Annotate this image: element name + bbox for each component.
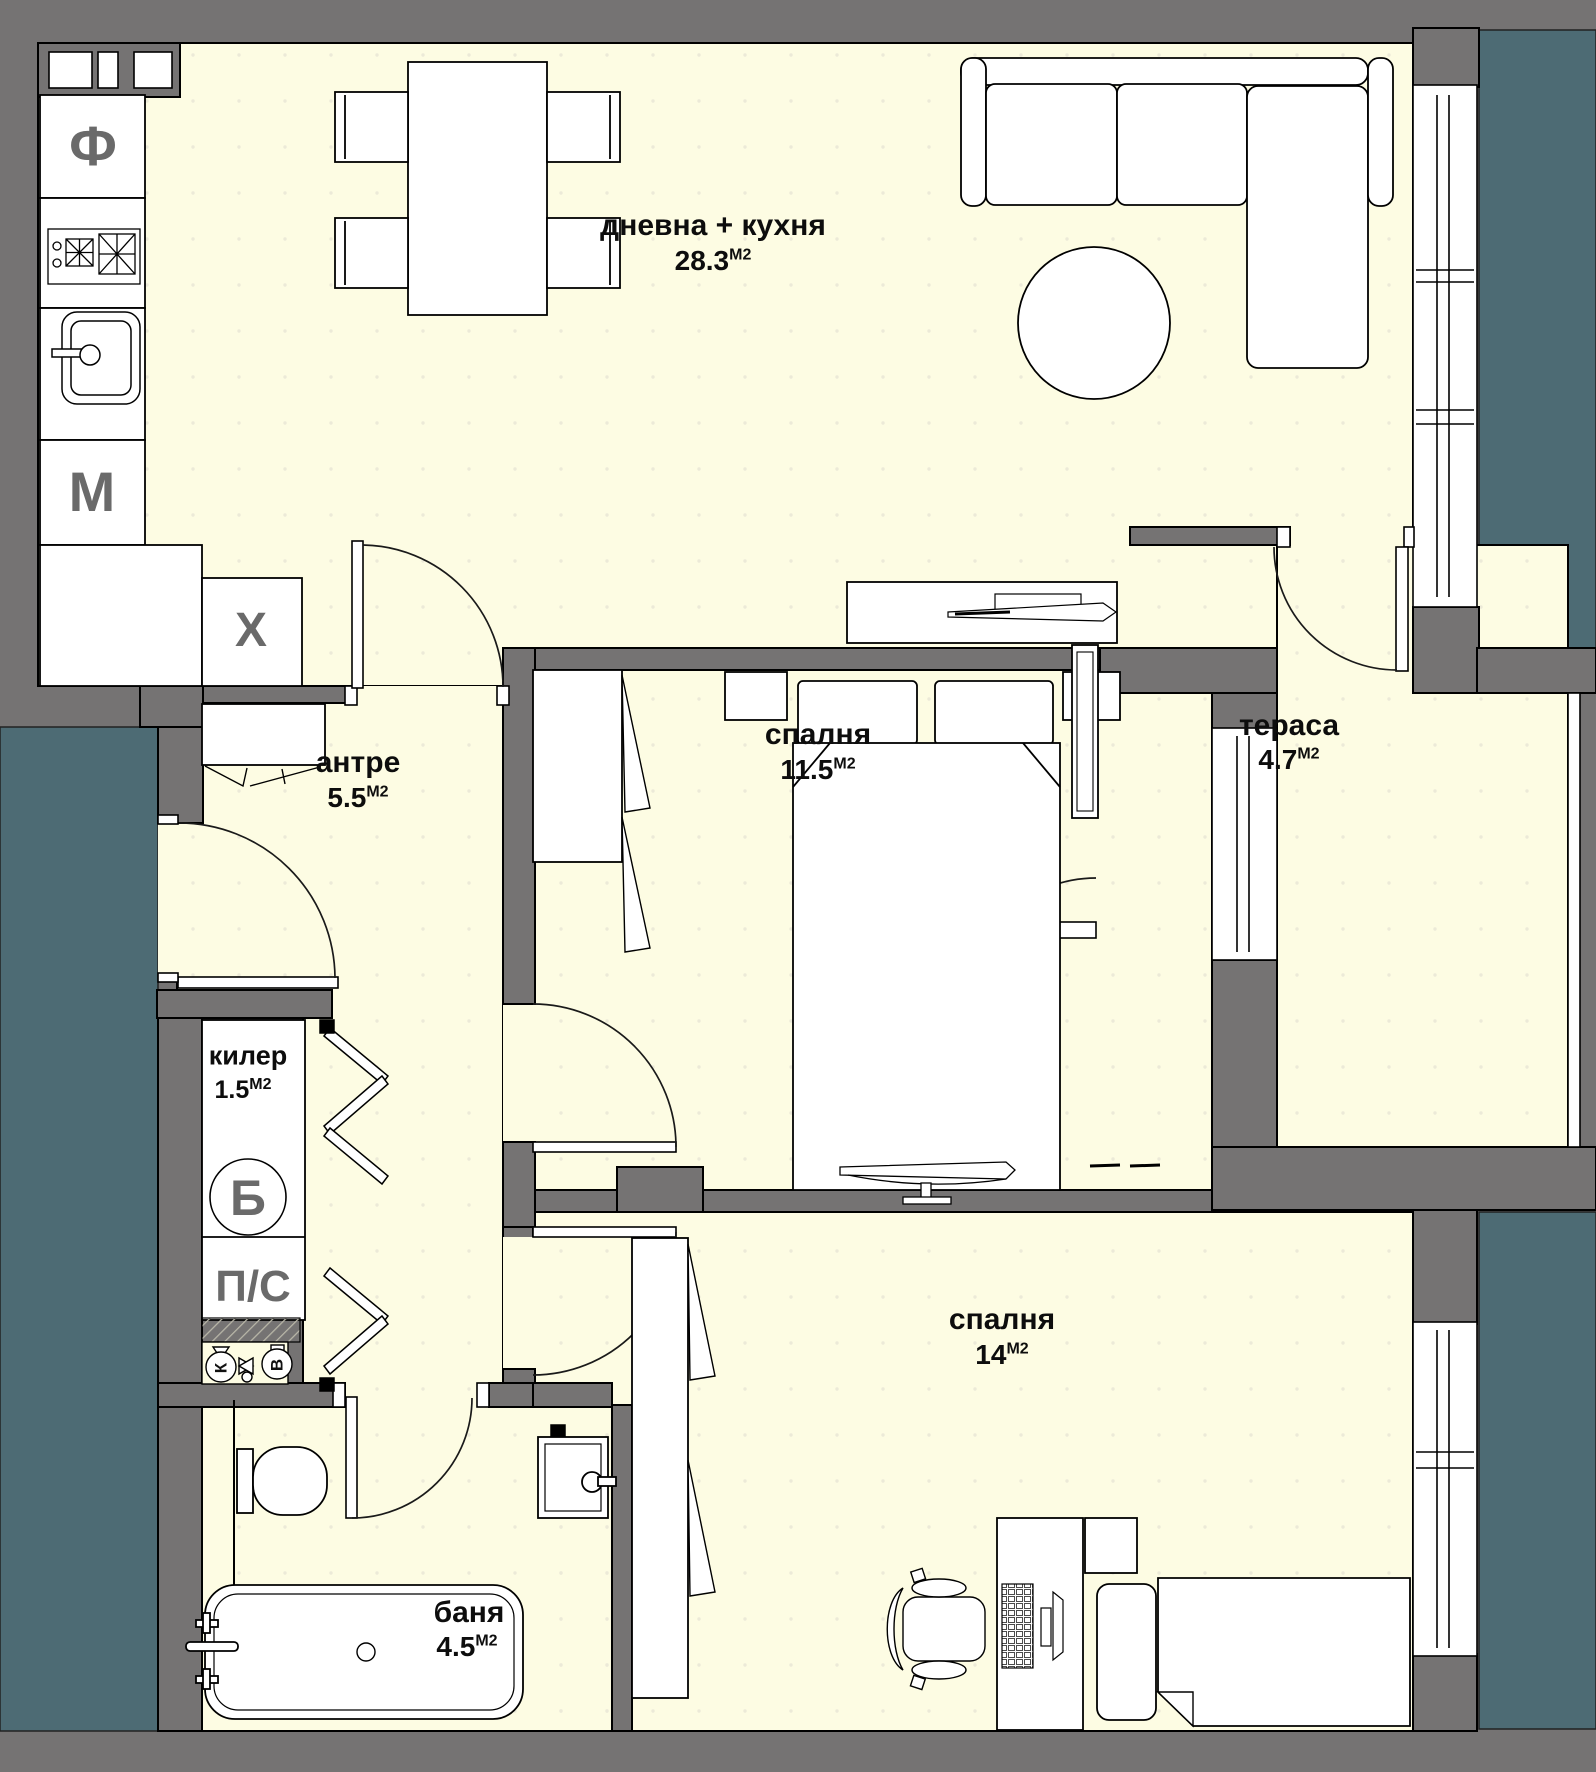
- bath-door-jamb-left: [333, 1383, 345, 1407]
- tv-cabinet: [847, 582, 1117, 643]
- label-terrace-name: тераса: [1239, 711, 1339, 741]
- keyboard: [1002, 1584, 1033, 1668]
- bath-door-pivot: [551, 1425, 565, 1438]
- living-door-jamb-right: [497, 686, 509, 705]
- coffee-table: [1018, 247, 1170, 399]
- label-closet-area: 1.5М2: [215, 1077, 272, 1103]
- label-meter-cold: К: [213, 1363, 230, 1373]
- wall-terrace-top: [1477, 648, 1596, 693]
- living-room-window: [1413, 85, 1477, 607]
- wall-bedroom1-bedroom2-chunk: [617, 1167, 703, 1212]
- bed2-pillow: [1097, 1584, 1156, 1720]
- bedroom1-door-leaf: [533, 1142, 676, 1152]
- hallway-threshold: [178, 977, 338, 988]
- wall-living-bedroom1: [503, 648, 1130, 670]
- wall-terrace-bottom: [1212, 1147, 1596, 1210]
- label-dishwasher: Х: [235, 607, 267, 655]
- sofa-cushion-2: [1117, 84, 1247, 205]
- label-meter-hot: В: [269, 1359, 286, 1371]
- label-hallway-name: антре: [316, 748, 401, 778]
- dining-table: [408, 62, 547, 315]
- wall-closet-top: [157, 990, 332, 1018]
- monitor-stand: [1041, 1608, 1051, 1646]
- label-bedroom2-area: 14М2: [975, 1341, 1028, 1369]
- wall-bathroom-top-nook: [533, 1383, 612, 1407]
- label-closet-name: килер: [209, 1043, 287, 1070]
- sofa-cushion-1: [986, 84, 1117, 205]
- bathroom-sink: [538, 1437, 616, 1518]
- bedroom2-window: [1413, 1322, 1477, 1656]
- chair-seat: [903, 1597, 985, 1661]
- bath-spout: [186, 1642, 238, 1651]
- kitchen-window-pane-2: [98, 52, 118, 88]
- bedroom2-nightstand: [1085, 1518, 1137, 1573]
- floor-plan-drawing: [0, 0, 1596, 1772]
- outside-left: [0, 727, 158, 1731]
- kitchen-sink-icon: [52, 312, 140, 404]
- entrance-jamb-top: [158, 815, 178, 824]
- meter-niche-hatch: [202, 1318, 300, 1342]
- living-hall-door-leaf: [352, 541, 363, 688]
- label-boiler: Б: [230, 1173, 266, 1223]
- sofa-back: [961, 58, 1368, 85]
- bathroom-door-leaf: [346, 1397, 357, 1518]
- wall-bedroom1-terrace-lower: [1212, 960, 1277, 1147]
- terrace-railing: [1568, 693, 1580, 1147]
- bedroom2-door-leaf: [533, 1227, 676, 1237]
- label-living-kitchen-area: 28.3М2: [675, 247, 752, 275]
- stove-icon: [48, 229, 140, 284]
- label-bathroom-name: баня: [434, 1598, 505, 1628]
- label-dryer: П/С: [215, 1265, 291, 1309]
- kitchen-corner-counter: [40, 545, 202, 686]
- entrance-jamb-bottom: [158, 973, 178, 982]
- wall-bathroom-top-right: [489, 1383, 533, 1407]
- living-door-jamb-left: [345, 686, 357, 705]
- terrace-door-leaf: [1396, 547, 1408, 671]
- label-bedroom2-name: спалня: [949, 1305, 1055, 1335]
- single-bed: [1097, 1578, 1410, 1726]
- wall-bedroom2-window-bottom: [1413, 1654, 1477, 1731]
- terrace-door-jamb-left: [1277, 527, 1290, 547]
- wall-corridor-east-2: [503, 1142, 535, 1227]
- wall-top-right-corner: [1413, 28, 1479, 87]
- sofa-armrest-right: [1368, 58, 1393, 206]
- terrace-door-jamb-right: [1404, 527, 1414, 547]
- wall-entrance-pier: [158, 727, 203, 823]
- sofa-chaise: [1247, 86, 1368, 368]
- floor-plan: дневна + кухня 28.3М2 спалня 11.5М2 тера…: [0, 0, 1596, 1772]
- outside-right-bottom: [1479, 1212, 1596, 1729]
- label-fridge: Ф: [69, 118, 117, 174]
- label-washing-machine: М: [69, 464, 116, 520]
- bath-door-jamb-right: [477, 1383, 489, 1407]
- toilet: [237, 1447, 327, 1515]
- bed2-blanket: [1158, 1578, 1410, 1726]
- pillow-right: [935, 681, 1053, 745]
- label-bathroom-area: 4.5М2: [436, 1633, 497, 1661]
- wall-west-upper: [140, 686, 203, 727]
- monitor: [1053, 1592, 1063, 1660]
- bed-body: [793, 743, 1060, 1190]
- wall-living-terrace: [1130, 527, 1290, 545]
- wall-right-mid: [1413, 607, 1479, 693]
- kitchen-window-pane-1: [49, 52, 92, 88]
- wall-bedroom2-window-top: [1413, 1210, 1477, 1324]
- wall-bathroom-bedroom2: [612, 1405, 632, 1731]
- bedroom1-tall-cabinet: [1072, 645, 1098, 818]
- desk-setup: [997, 1518, 1083, 1730]
- label-terrace-area: 4.7М2: [1258, 746, 1319, 774]
- wall-living-bedroom1-right: [1100, 648, 1277, 693]
- kitchen-window-pane-3: [134, 52, 172, 88]
- sofa-armrest-left: [961, 58, 986, 206]
- label-hallway-area: 5.5М2: [327, 784, 388, 812]
- label-bedroom1-name: спалня: [765, 720, 871, 750]
- label-living-kitchen-name: дневна + кухня: [600, 211, 826, 241]
- label-bedroom1-area: 11.5М2: [780, 756, 855, 784]
- wall-bathroom-top-left: [158, 1383, 345, 1407]
- nightstand-left: [725, 672, 787, 720]
